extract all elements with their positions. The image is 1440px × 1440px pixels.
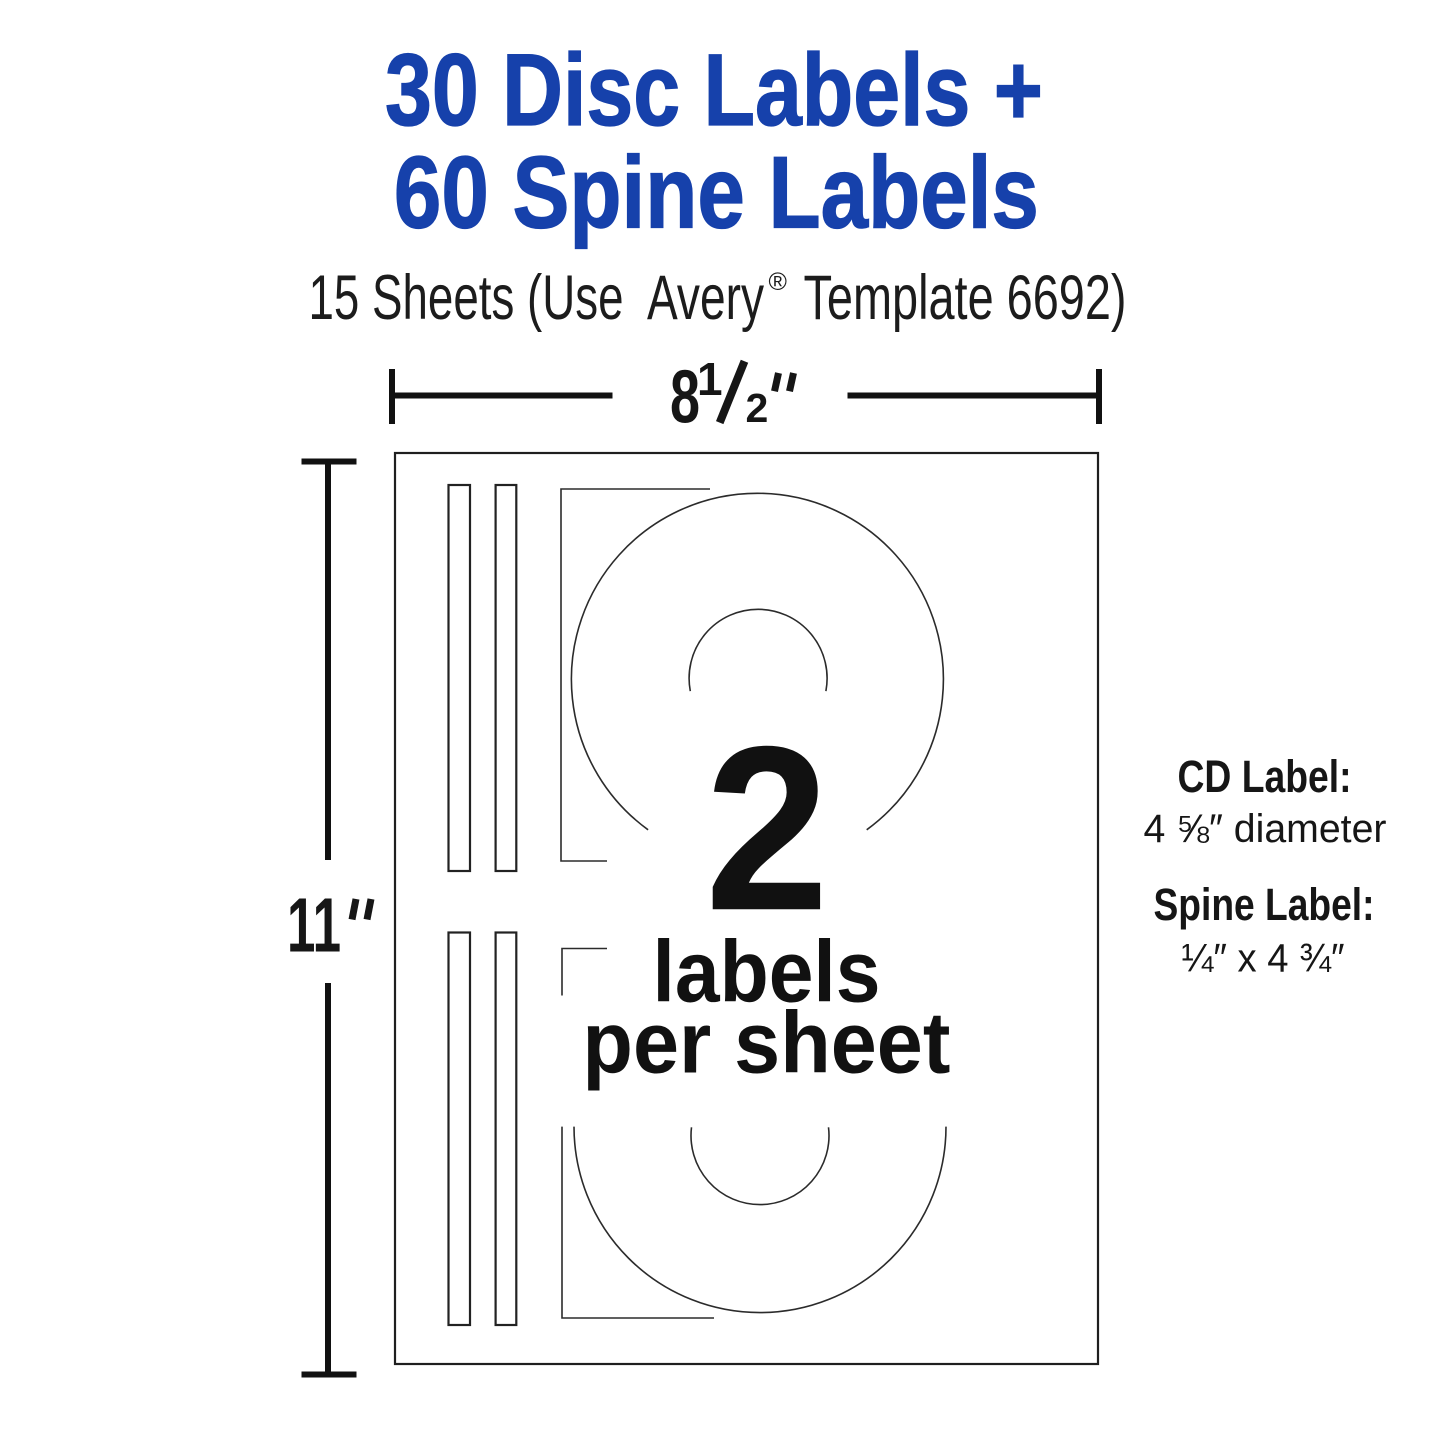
svg-text:11: 11	[287, 882, 341, 968]
svg-text:8: 8	[670, 355, 700, 439]
svg-text:4 ⅝″ diameter: 4 ⅝″ diameter	[1144, 807, 1387, 851]
svg-text:30 Disc Labels +: 30 Disc Labels +	[385, 33, 1043, 147]
svg-text:Avery: Avery	[647, 263, 764, 333]
svg-text:¼″ x 4 ¾″: ¼″ x 4 ¾″	[1182, 937, 1345, 981]
svg-text:60 Spine Labels: 60 Spine Labels	[394, 135, 1039, 249]
svg-text:®: ®	[769, 268, 788, 296]
svg-text:15 Sheets (Use: 15 Sheets (Use	[309, 263, 624, 333]
svg-text:1: 1	[697, 353, 723, 405]
svg-text:per sheet: per sheet	[582, 995, 950, 1092]
svg-text:Template 6692): Template 6692)	[804, 263, 1127, 333]
svg-text:CD Label:: CD Label:	[1178, 751, 1352, 802]
svg-text:2: 2	[705, 697, 829, 959]
svg-text:Spine Label:: Spine Label:	[1154, 879, 1375, 930]
svg-text:2: 2	[746, 385, 769, 431]
